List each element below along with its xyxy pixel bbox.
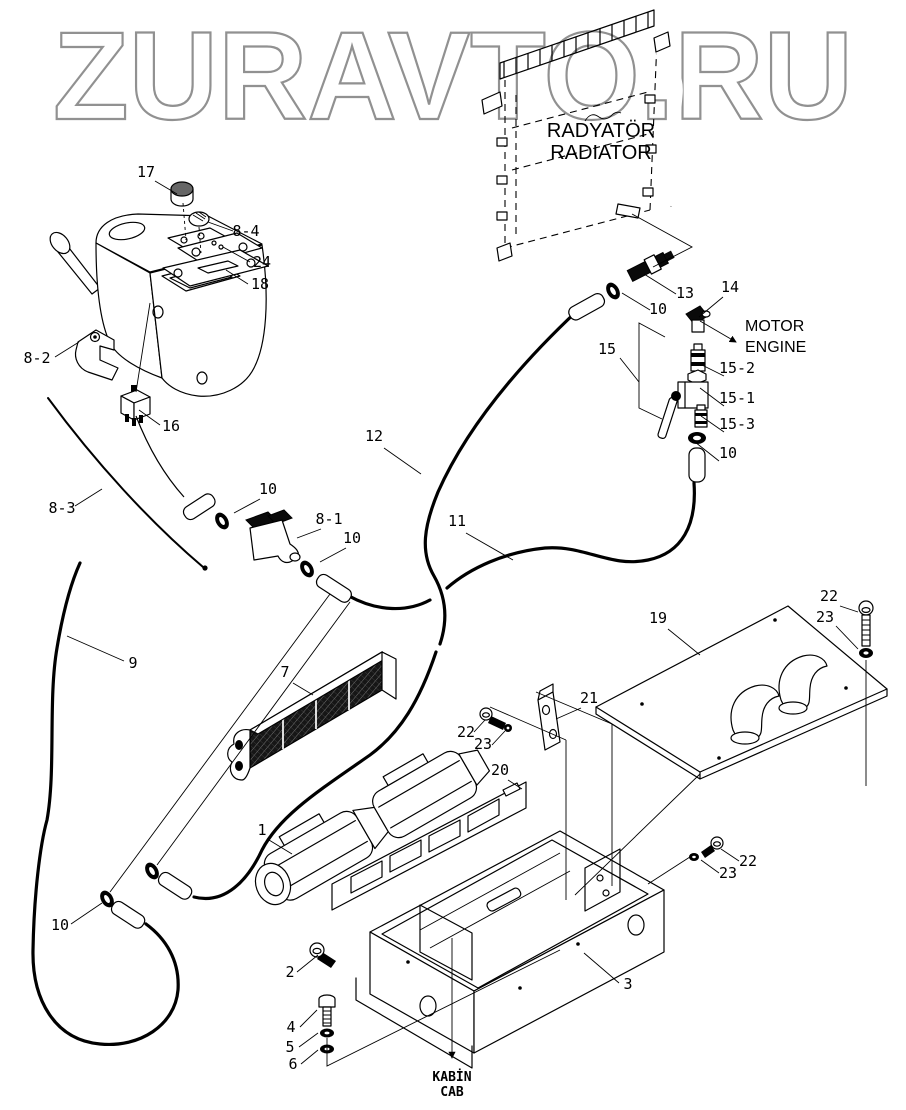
screw-22-top: [859, 601, 873, 646]
valve-8-1-group: [181, 492, 353, 605]
control-console-illustration: [46, 182, 268, 426]
bolt-4: [319, 995, 335, 1026]
callout-15-3: 15-3: [719, 415, 755, 433]
callout-10-top: 10: [649, 300, 667, 318]
radiator-label-en: RADIATOR: [550, 142, 652, 164]
callout-17: 17: [137, 163, 155, 181]
engine-label-tr: MOTOR: [745, 318, 804, 335]
callout-22-left: 22: [457, 723, 475, 741]
elbow-14: [686, 306, 710, 332]
callout-5: 5: [285, 1038, 294, 1056]
callout-9: 9: [128, 654, 137, 672]
callout-10-bottom: 10: [51, 916, 69, 934]
callout-23-top: 23: [816, 608, 834, 626]
cab-label-en: CAB: [440, 1085, 464, 1100]
hose-sleeve-b: [314, 572, 353, 604]
washer-5: [320, 1029, 334, 1038]
callout-15: 15: [598, 340, 616, 358]
washer-23-top: [859, 648, 873, 658]
callout-23-right: 23: [719, 864, 737, 882]
callout-8-1: 8-1: [315, 510, 342, 528]
engine-arrow: [700, 321, 736, 342]
callout-22-right: 22: [739, 852, 757, 870]
switch-16: [121, 385, 150, 426]
callout-20: 20: [491, 761, 509, 779]
callout-8-2: 8-2: [23, 349, 50, 367]
screw-2: [310, 943, 336, 968]
hose-9: [33, 563, 178, 1044]
o-ring-10-a: [212, 510, 231, 532]
callout-21: 21: [580, 689, 598, 707]
hose-11: [447, 483, 694, 588]
callout-2: 2: [285, 963, 294, 981]
engine-label-en: ENGINE: [745, 339, 806, 356]
watermark-text: ZURAVTO.RU: [53, 7, 853, 146]
callout-6: 6: [288, 1055, 297, 1073]
bottom-left-fittings: [97, 860, 194, 930]
o-ring-10-b: [297, 558, 316, 580]
callout-4: 4: [286, 1018, 295, 1036]
callout-3: 3: [623, 975, 632, 993]
callout-13: 13: [676, 284, 694, 302]
callout-12: 12: [365, 427, 383, 445]
callout-8-4: 8-4: [232, 222, 259, 240]
engine-valve-chain: [657, 306, 710, 482]
cover-plate-19: [596, 606, 887, 779]
callout-8-3: 8-3: [48, 499, 75, 517]
callout-19: 19: [649, 609, 667, 627]
radiator-outlet: [616, 204, 640, 218]
callout-22-top: 22: [820, 587, 838, 605]
callout-15-1: 15-1: [719, 389, 755, 407]
hose-sleeve-chain: [689, 448, 705, 482]
callout-24: 24: [253, 253, 271, 271]
callout-1: 1: [257, 821, 266, 839]
callout-10-mid: 10: [259, 480, 277, 498]
callout-23-left: 23: [474, 735, 492, 753]
hose-sleeve-a: [181, 492, 217, 522]
callout-7: 7: [280, 663, 289, 681]
exploded-parts-diagram: ZURAVTO.RU: [0, 0, 906, 1110]
cab-label-tr: KABİN: [432, 1069, 471, 1085]
callout-10-chain: 10: [719, 444, 737, 462]
callout-15-2: 15-2: [719, 359, 755, 377]
o-ring-10-top: [603, 280, 622, 302]
parts-diagram-page: ZURAVTO.RU: [0, 0, 906, 1110]
callout-16: 16: [162, 417, 180, 435]
hose-valve-out: [349, 596, 430, 609]
callout-10-valve: 10: [343, 529, 361, 547]
o-ring-10-chain: [688, 432, 706, 444]
hose-sleeve-top: [567, 291, 607, 322]
callout-18: 18: [251, 275, 269, 293]
callout-11: 11: [448, 512, 466, 530]
heater-core-7: [228, 652, 396, 780]
nipple-15-2: [691, 344, 705, 371]
hose-12: [425, 310, 578, 644]
callout-14: 14: [721, 278, 739, 296]
radiator-label-tr: RADYATÖR: [547, 120, 655, 142]
screw-22-right: [689, 837, 723, 861]
bracket-15-line: [639, 323, 665, 419]
valve-8-1: [246, 510, 300, 563]
